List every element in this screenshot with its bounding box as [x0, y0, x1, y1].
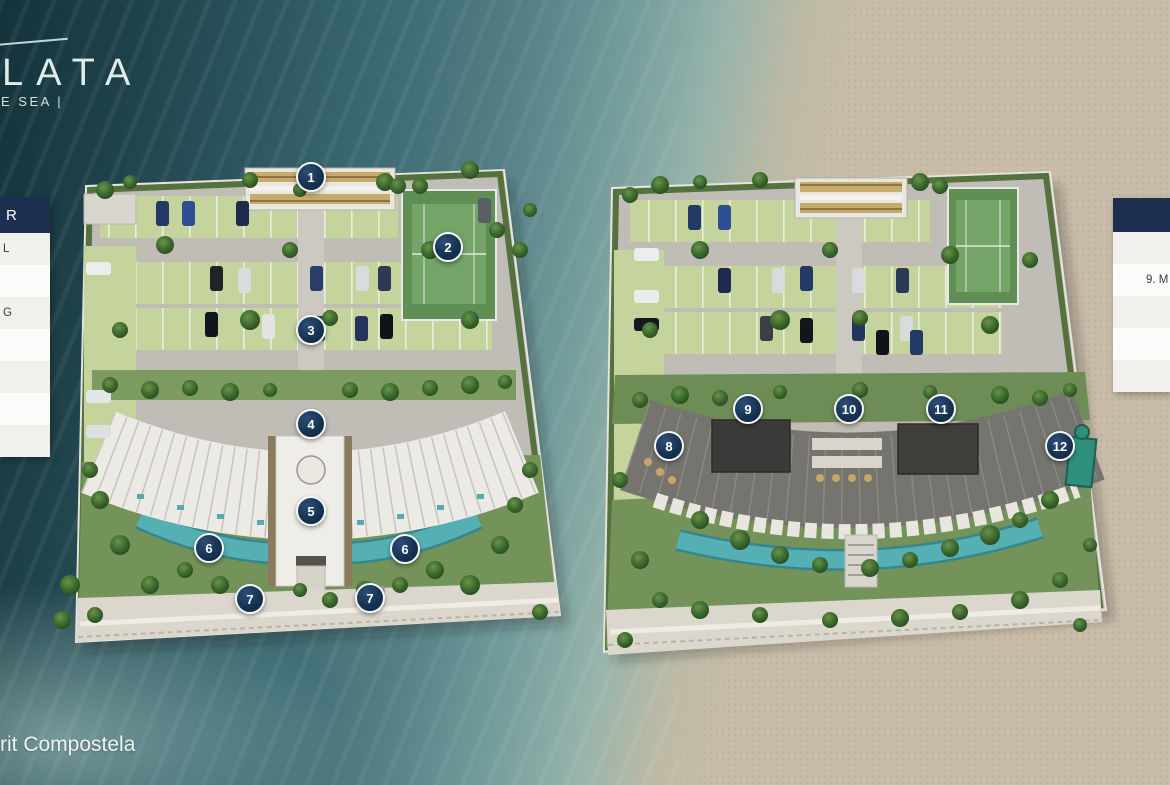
location-caption: rit Compostela: [0, 733, 135, 757]
plan-marker-number: 7: [246, 592, 253, 607]
legend-left-row: [0, 425, 50, 457]
plan-marker-number: 12: [1053, 439, 1067, 454]
legend-right-row: [1113, 360, 1170, 392]
plan-marker-4: 4: [296, 409, 326, 439]
legend-left-row: [0, 329, 50, 361]
plan-marker-number: 2: [444, 240, 451, 255]
plan-marker-6: 6: [390, 534, 420, 564]
plan-marker-number: 10: [842, 402, 856, 417]
plan-marker-9: 9: [733, 394, 763, 424]
plan-marker-11: 11: [926, 394, 956, 424]
legend-right-row: [1113, 328, 1170, 360]
plan-marker-5: 5: [296, 496, 326, 526]
plan-marker-10: 10: [834, 394, 864, 424]
legend-panel-right: 9. M: [1113, 198, 1170, 392]
legend-left-row: [0, 393, 50, 425]
legend-left-row: G: [0, 297, 50, 329]
legend-panel-left: R L G: [0, 197, 50, 457]
plan-marker-2: 2: [433, 232, 463, 262]
markers-layer: 12345667789101112: [0, 0, 1170, 785]
legend-right-row: [1113, 296, 1170, 328]
legend-right-row: [1113, 232, 1170, 264]
plan-marker-number: 5: [307, 504, 314, 519]
legend-right-row: 9. M: [1113, 264, 1170, 296]
legend-left-row: [0, 265, 50, 297]
plan-marker-number: 6: [401, 542, 408, 557]
brand-tagline: E SEA |: [1, 94, 63, 109]
plan-marker-3: 3: [296, 315, 326, 345]
legend-left-row: [0, 361, 50, 393]
plan-marker-number: 8: [665, 439, 672, 454]
plan-marker-number: 1: [307, 170, 314, 185]
brand-name: LATA: [2, 52, 143, 95]
plan-marker-12: 12: [1045, 431, 1075, 461]
plan-marker-number: 7: [366, 591, 373, 606]
plan-marker-number: 4: [307, 417, 314, 432]
plan-marker-number: 3: [307, 323, 314, 338]
plan-marker-6: 6: [194, 533, 224, 563]
site-plan-slide: 12345667789101112 R L G 9. M LATA E SEA …: [0, 0, 1170, 785]
plan-marker-8: 8: [654, 431, 684, 461]
legend-left-header-text: R: [6, 207, 18, 224]
legend-left-row: L: [0, 233, 50, 265]
legend-right-header: [1113, 198, 1170, 232]
plan-marker-number: 11: [934, 402, 948, 417]
plan-marker-7: 7: [235, 584, 265, 614]
plan-marker-number: 6: [205, 541, 212, 556]
legend-left-header: R: [0, 197, 50, 233]
plan-marker-number: 9: [744, 402, 751, 417]
plan-marker-1: 1: [296, 162, 326, 192]
plan-marker-7: 7: [355, 583, 385, 613]
